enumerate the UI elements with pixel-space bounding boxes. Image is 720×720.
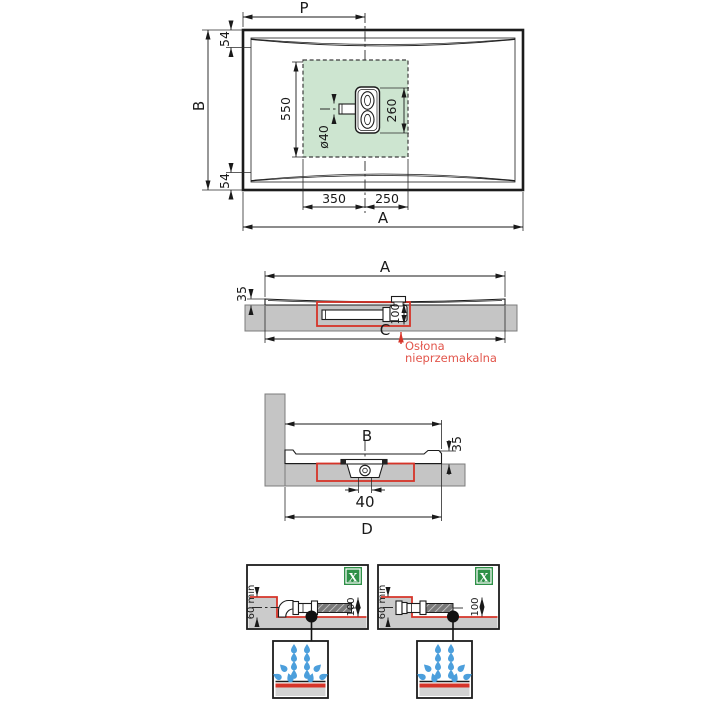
dim-label-54-bottom: 54: [217, 173, 232, 189]
drain-slot-top: [361, 92, 374, 110]
dim-label-100: 100: [346, 597, 357, 616]
waste-pipe-side: [322, 310, 384, 320]
callout-dot: [447, 611, 459, 623]
drawing-canvas: P B 54 54 550 260 ø40 350: [0, 0, 720, 720]
dim-label-260: 260: [384, 99, 399, 123]
dim-label-40: 40: [355, 493, 374, 511]
callout-dot: [306, 611, 318, 623]
substrate: [276, 688, 326, 697]
waterproof-layer: [276, 684, 326, 688]
detail-right: 60 min 100 X: [377, 565, 499, 641]
dim-label-60min: 60 min: [377, 585, 388, 620]
dim-label-35: 35: [234, 286, 249, 302]
side-section-view: 100 35 A C Osłona nieprzemakalna: [234, 258, 517, 365]
substrate: [420, 688, 470, 697]
dim-label-350: 350: [322, 191, 346, 206]
drain-slot-bottom: [361, 111, 374, 129]
outlet-pipe: [360, 465, 370, 475]
dim-label-b: B: [190, 101, 208, 111]
pipe-nut: [420, 601, 426, 615]
dim-label-b2: B: [362, 427, 372, 445]
shower-tray-technical-drawing: P B 54 54 550 260 ø40 350: [0, 0, 720, 720]
drain-cap: [392, 297, 406, 303]
top-view: P B 54 54 550 260 ø40 350: [190, 0, 523, 231]
dim-label-60min: 60 min: [246, 585, 257, 620]
dim-label-250: 250: [375, 191, 399, 206]
dim-label-c: C: [380, 321, 390, 339]
dim-label-550: 550: [278, 97, 293, 121]
dim-label-d: D: [361, 520, 373, 538]
installation-details: 60 min 100 X 60 min 100: [246, 565, 499, 698]
detail-left: 60 min 100 X: [246, 565, 368, 641]
spray-detail-right: [416, 641, 474, 698]
drain-flange: [341, 460, 387, 465]
dim-label-a2: A: [380, 258, 391, 276]
spray-detail-left: [272, 641, 330, 698]
dim-label-pipe-diameter: ø40: [316, 125, 331, 149]
waterproof-layer: [420, 684, 470, 688]
dim-label-54-top: 54: [217, 31, 232, 47]
ok-badge-x: X: [479, 570, 489, 585]
pipe-coupling: [396, 601, 402, 615]
pipe-body: [407, 604, 420, 613]
pipe-coupling: [293, 602, 299, 615]
flexible-pipe: [426, 604, 453, 613]
pipe-ring: [402, 603, 407, 614]
ok-badge-x: X: [348, 570, 358, 585]
gasket-left: [341, 460, 346, 465]
dim-label-a: A: [378, 209, 389, 227]
dim-label-35-2: 35: [449, 436, 464, 452]
wall-section-view: B 35 40 D: [265, 394, 465, 538]
wall: [265, 394, 285, 486]
waste-pipe: [339, 104, 356, 114]
dim-label-100: 100: [389, 304, 402, 325]
dim-label-100: 100: [470, 597, 481, 616]
note-line-2: nieprzemakalna: [405, 351, 497, 365]
gasket-right: [382, 460, 387, 465]
dim-label-p: P: [299, 0, 308, 17]
